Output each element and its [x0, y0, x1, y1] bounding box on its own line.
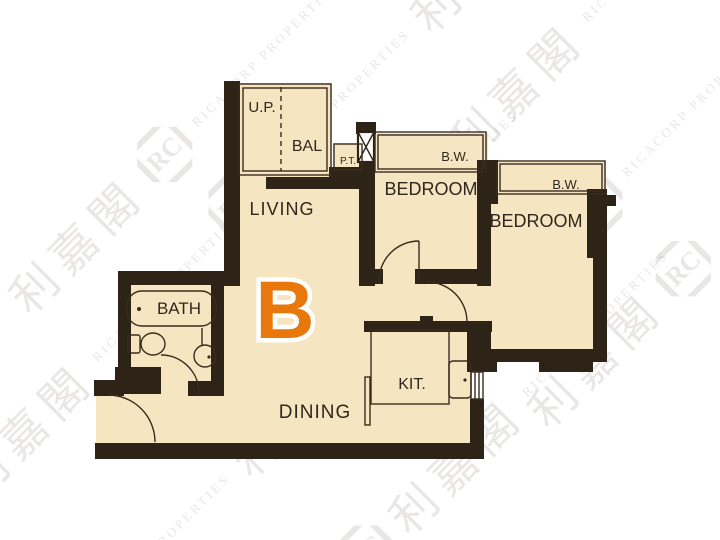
- wall-segment: [94, 380, 124, 396]
- structural-column: [358, 132, 374, 162]
- wall-segment: [470, 399, 484, 459]
- wall-segment: [224, 81, 240, 286]
- living-floor: [224, 285, 240, 450]
- room-floors: [96, 83, 606, 450]
- basin-drain-dot: [207, 355, 210, 358]
- wall-segment: [481, 349, 607, 362]
- bathroom-label: BATH: [157, 299, 201, 318]
- wall-segment: [95, 443, 484, 459]
- wall-segment: [539, 362, 593, 372]
- wall-segment: [266, 177, 373, 189]
- wall-segment: [415, 269, 491, 284]
- wall-segment: [211, 274, 224, 396]
- pipe-duct-label: P.T.: [340, 156, 356, 167]
- bedroom-2-label: BEDROOM: [489, 211, 582, 231]
- entry-floor: [96, 393, 224, 445]
- wall-segment: [477, 160, 498, 204]
- utility-platform-label: U.P.: [248, 99, 275, 116]
- sink-drain-dot: [463, 378, 466, 381]
- balcony-floor: [238, 83, 332, 178]
- bay-window-1-label: B.W.: [441, 149, 468, 164]
- living-label: LIVING: [249, 199, 314, 219]
- wall-segment: [118, 271, 226, 285]
- wall-segment: [118, 271, 131, 381]
- kitchen-window: [471, 372, 483, 399]
- bedroom-1-label: BEDROOM: [384, 179, 477, 199]
- door-hinge-block: [420, 316, 433, 327]
- floor-plan-svg: U.P. BAL P.T. LIVING B.W. BEDROOM B.W. B…: [0, 0, 720, 540]
- balcony-label: BAL: [292, 138, 322, 155]
- floor-plan-page: 利嘉閣 RC RICACORP PROPERTIES RC RICACORP P…: [0, 0, 720, 540]
- wall-segment: [593, 258, 607, 361]
- bay-window-2-label: B.W.: [552, 177, 579, 192]
- kitchen-label: KIT.: [398, 376, 426, 393]
- wall-segment: [587, 189, 607, 258]
- wall-segment: [188, 381, 224, 396]
- kitchen-window-panes: [475, 372, 479, 399]
- unit-letter: B: [255, 265, 314, 356]
- bathtub-faucet-dot: [137, 307, 141, 311]
- dining-label: DINING: [279, 402, 352, 423]
- wall-segment: [606, 195, 616, 206]
- bath-door-floor: [158, 378, 192, 398]
